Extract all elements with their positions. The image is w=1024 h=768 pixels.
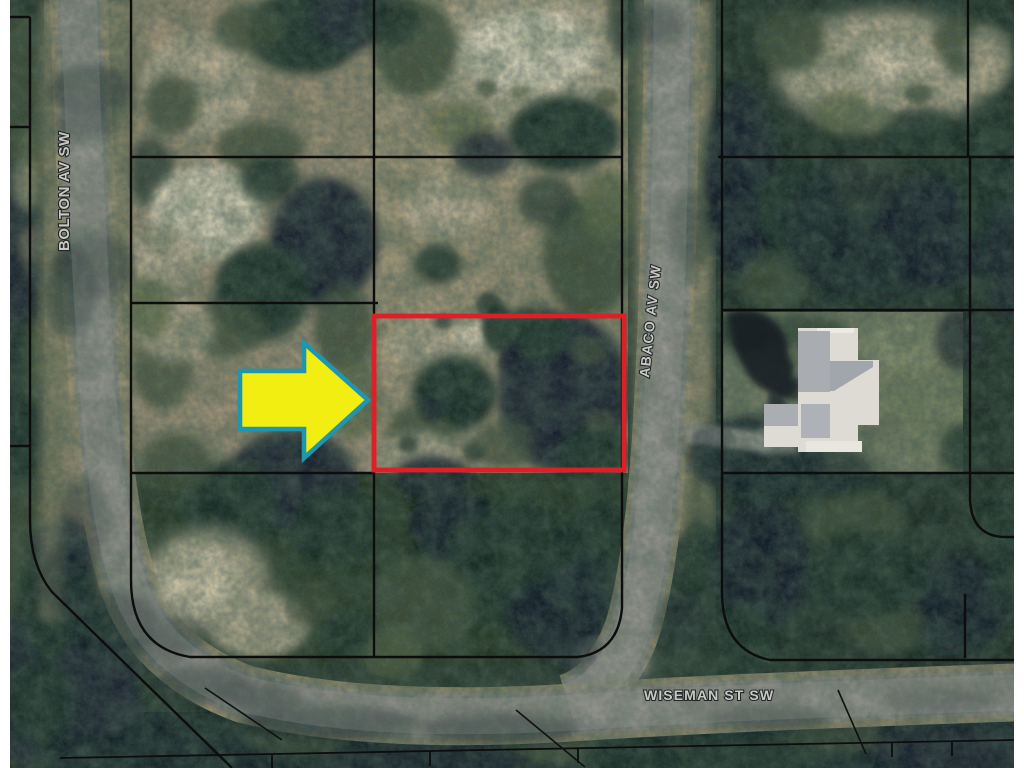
svg-text:WISEMAN ST SW: WISEMAN ST SW [644,687,774,703]
svg-text:BOLTON AV SW: BOLTON AV SW [56,131,73,251]
